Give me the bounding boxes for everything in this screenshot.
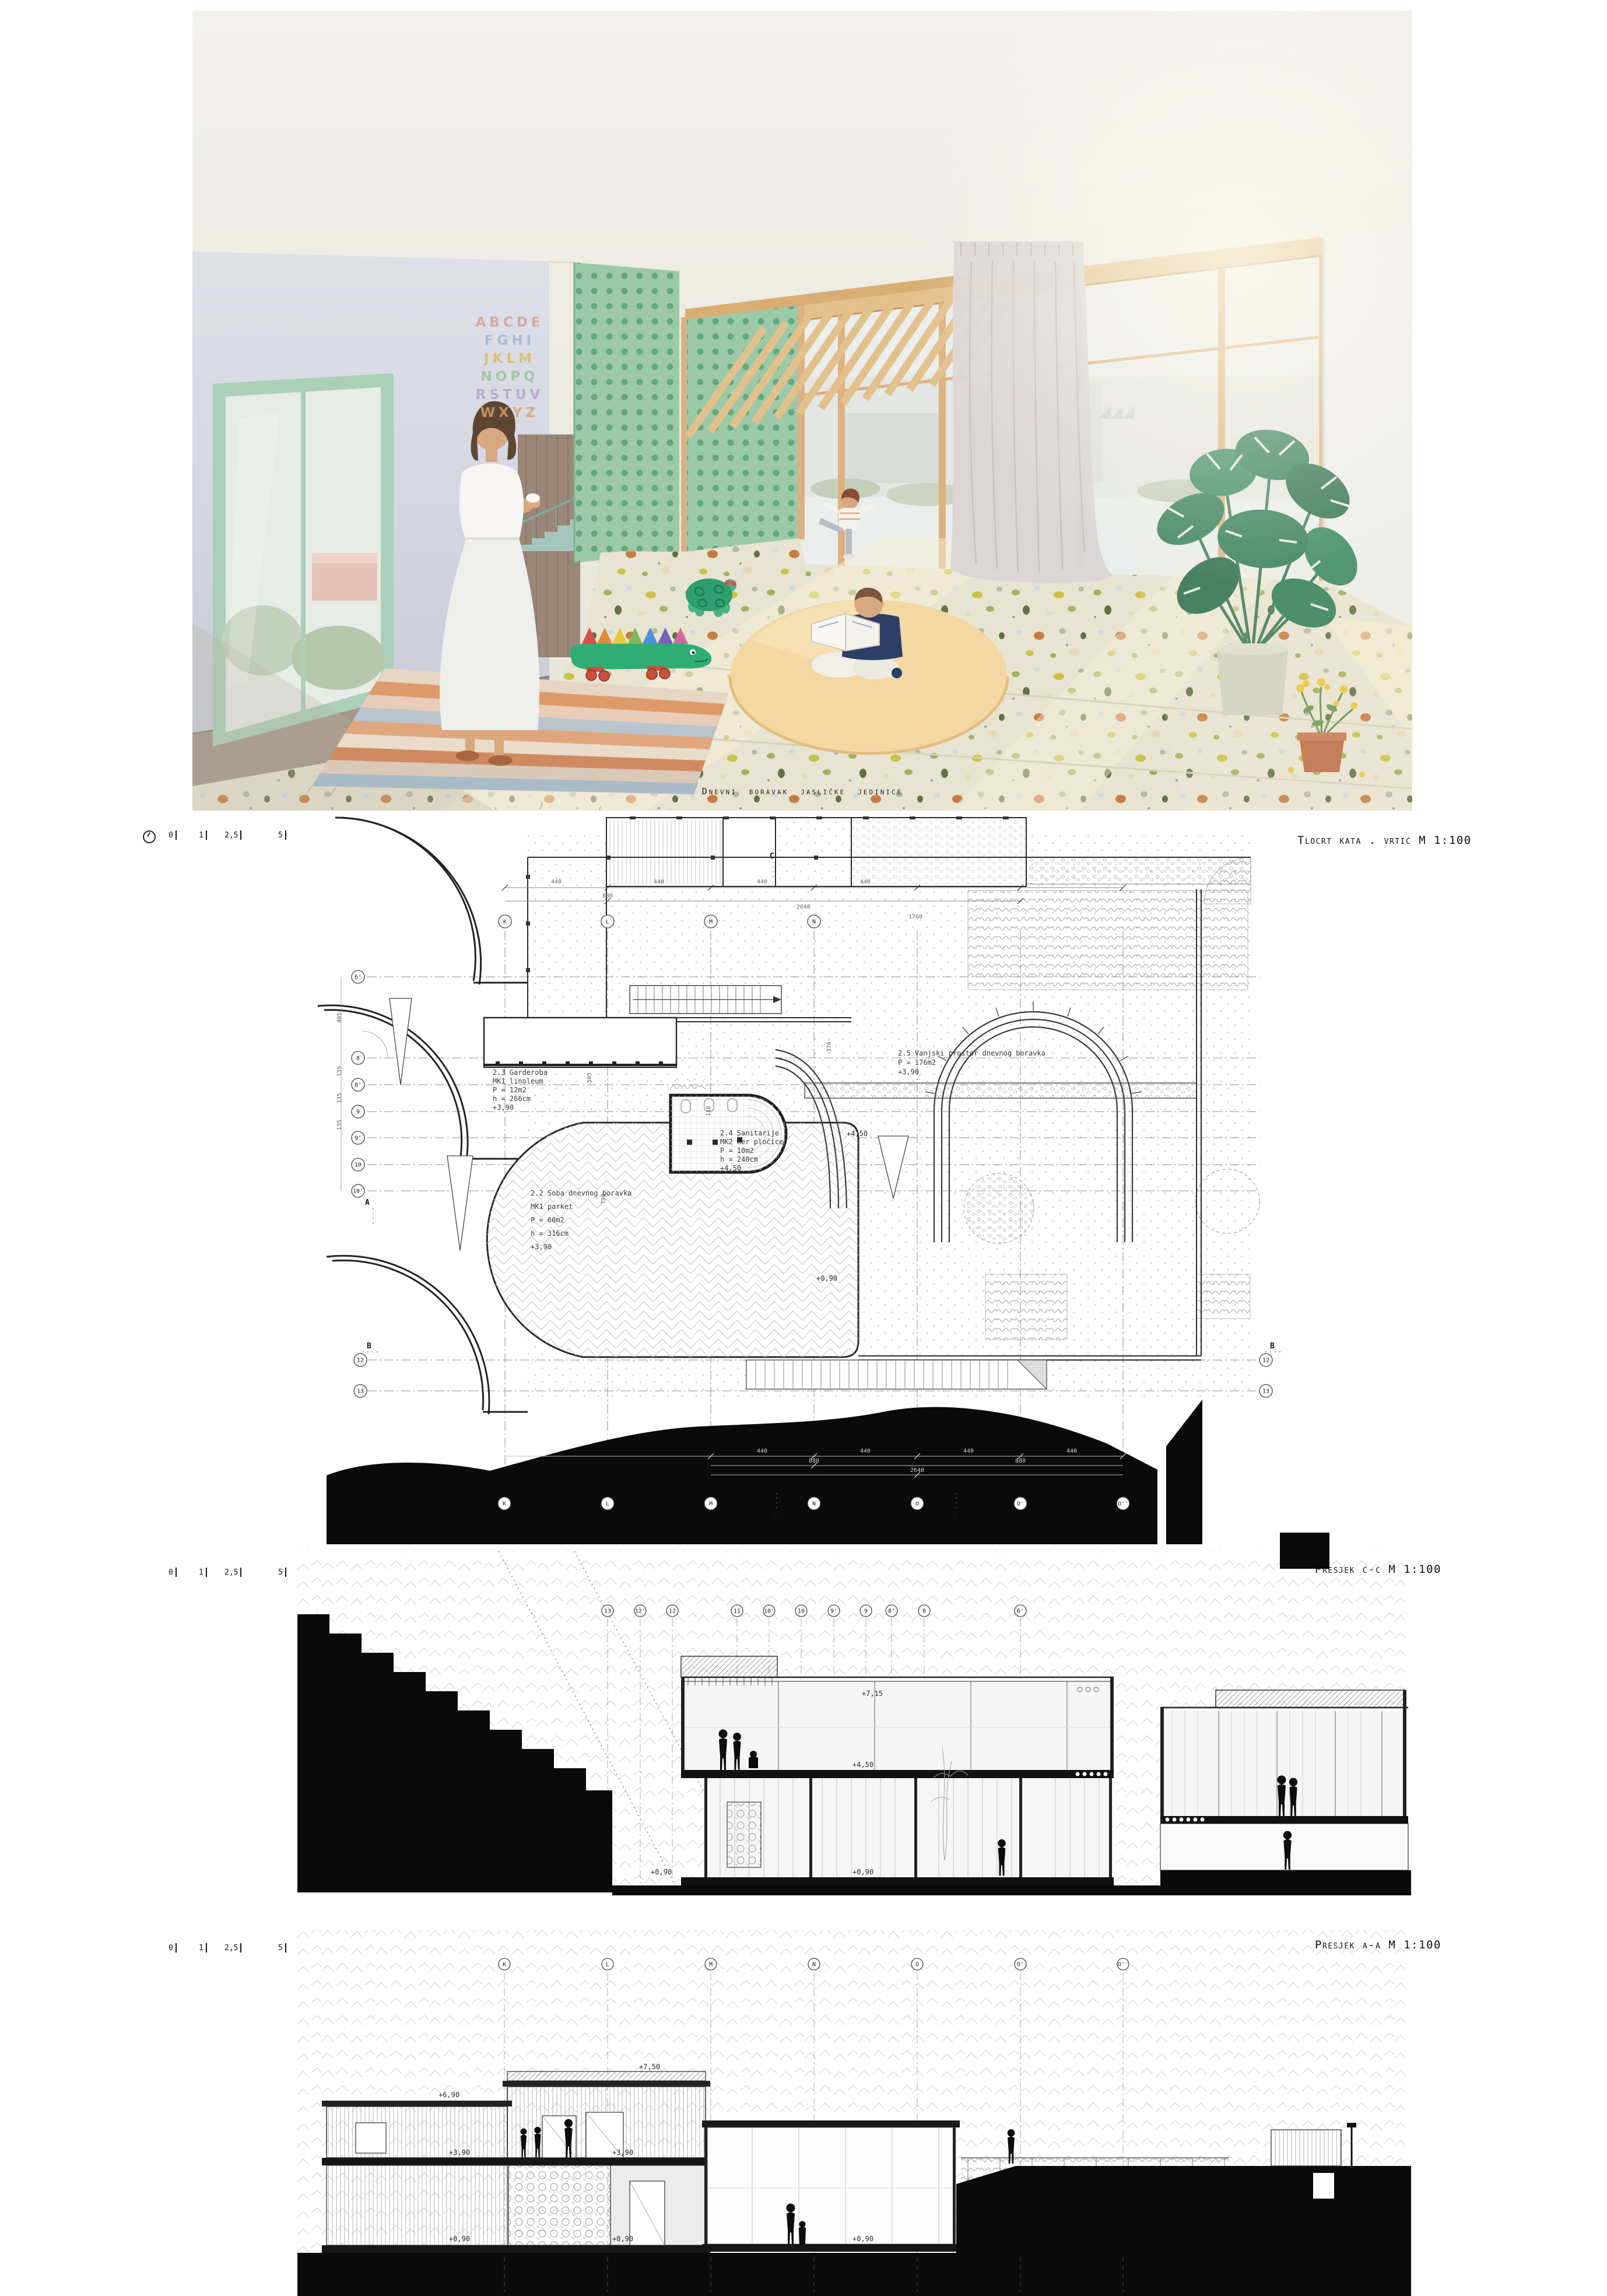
svg-text:+3,90: +3,90 <box>898 1068 919 1076</box>
floor-plan-drawing: 440 440 440 440 880 880 2640 440 440 440… <box>292 816 1283 1545</box>
svg-text:6': 6' <box>355 975 362 981</box>
svg-text:K: K <box>503 1962 506 1968</box>
svg-text:A: A <box>365 1198 370 1207</box>
svg-text:118: 118 <box>706 1106 712 1116</box>
svg-text:N: N <box>812 1501 816 1508</box>
alphabet-row: NOPQ <box>471 368 548 386</box>
svg-text:O: O <box>915 1501 919 1508</box>
svg-text:1760: 1760 <box>908 914 922 920</box>
aa-middle-building <box>702 2120 960 2252</box>
svg-text:M: M <box>709 1962 713 1968</box>
section-aa-scale-bar: 0 1 2,5 5 <box>143 1941 300 1957</box>
section-cc-scale-bar: 0 1 2,5 5 <box>143 1565 300 1582</box>
svg-text:440: 440 <box>757 879 767 885</box>
svg-text:9': 9' <box>830 1608 837 1615</box>
svg-text:10: 10 <box>798 1608 805 1615</box>
site-poche <box>327 1400 1202 1544</box>
plan-title: Tlocrt kata . vrtić M 1:100 <box>1297 834 1472 847</box>
svg-text:135: 135 <box>336 1066 343 1077</box>
scale-1: 1 <box>199 831 203 840</box>
alphabet-row: JKLM <box>471 350 548 368</box>
svg-text:M: M <box>709 919 713 926</box>
green-tile-wall-left <box>574 262 679 563</box>
svg-text:135: 135 <box>336 1120 343 1130</box>
svg-text:L: L <box>606 1962 609 1968</box>
svg-text:+0,90: +0,90 <box>449 2235 470 2243</box>
svg-text:+3,90: +3,90 <box>493 1103 514 1112</box>
svg-text:880: 880 <box>809 1458 819 1464</box>
svg-text:O'': O'' <box>1118 1962 1128 1968</box>
svg-text:K: K <box>503 919 507 926</box>
svg-text:9': 9' <box>355 1135 362 1142</box>
svg-text:MK2 ker pločice: MK2 ker pločice <box>720 1138 783 1146</box>
svg-text:405: 405 <box>336 1012 343 1023</box>
alphabet-row: WXYZ <box>471 404 548 422</box>
scale-2-5: 2,5 <box>224 1944 238 1953</box>
svg-text:505: 505 <box>587 1072 593 1083</box>
dim-strings-left: 405 135 135 135 <box>336 977 343 1191</box>
svg-text:12': 12' <box>635 1608 645 1615</box>
svg-text:MK1 parket: MK1 parket <box>531 1203 573 1211</box>
svg-text:O': O' <box>1017 1501 1024 1508</box>
scale-0: 0 <box>169 831 173 840</box>
svg-text:13: 13 <box>1262 1389 1269 1395</box>
svg-text:2.5 Vanjski prostor dnevnog bo: 2.5 Vanjski prostor dnevnog boravka <box>898 1049 1045 1057</box>
svg-text:135: 135 <box>336 1093 343 1103</box>
scale-1: 1 <box>199 1568 203 1577</box>
svg-text:h = 266cm: h = 266cm <box>493 1095 531 1103</box>
scale-5: 5 <box>278 1944 283 1953</box>
svg-text:12: 12 <box>1262 1358 1269 1364</box>
svg-text:MK1 linoleum: MK1 linoleum <box>493 1077 543 1085</box>
svg-text:10': 10' <box>353 1189 363 1195</box>
curved-pavilion-walls <box>318 818 528 1414</box>
svg-text:+3,90: +3,90 <box>612 2148 633 2157</box>
section-cc-drawing: +7,15 +4,50 +0,90 +0,90 13 12' 12 11 10'… <box>292 1528 1411 1895</box>
svg-text:+0,90: +0,90 <box>612 2235 633 2243</box>
svg-text:O': O' <box>1017 1962 1024 1968</box>
svg-text:+7,50: +7,50 <box>639 2063 660 2071</box>
svg-text:N: N <box>812 919 816 926</box>
svg-text:B: B <box>367 1342 371 1351</box>
svg-text:13: 13 <box>604 1608 611 1615</box>
svg-text:2640: 2640 <box>797 904 810 910</box>
svg-text:+4,50: +4,50 <box>720 1164 741 1172</box>
svg-text:880: 880 <box>602 893 613 899</box>
alphabet-row: FGHI <box>471 332 548 350</box>
svg-text:+3,90: +3,90 <box>449 2148 470 2157</box>
svg-text:+6,90: +6,90 <box>438 2091 459 2099</box>
svg-text:D: D <box>953 1513 957 1522</box>
level-label: +0,90 <box>816 1274 837 1282</box>
outdoor-stair <box>746 1360 1047 1389</box>
svg-text:C: C <box>773 1513 778 1522</box>
svg-text:440: 440 <box>963 1448 974 1454</box>
alphabet-wall-letters: ABCDE FGHI JKLM NOPQ RSTUV WXYZ <box>471 314 548 422</box>
svg-text:12: 12 <box>669 1608 676 1615</box>
svg-text:L: L <box>606 1501 609 1508</box>
scale-5: 5 <box>278 1568 283 1577</box>
svg-text:440: 440 <box>860 879 871 885</box>
svg-text:2.3 Garderoba: 2.3 Garderoba <box>493 1068 548 1077</box>
svg-text:440: 440 <box>551 879 562 885</box>
svg-text:9: 9 <box>356 1109 360 1116</box>
svg-text:L: L <box>606 919 609 926</box>
svg-text:N: N <box>812 1962 816 1968</box>
svg-text:P = 10m2: P = 10m2 <box>720 1147 754 1155</box>
svg-text:+4,50: +4,50 <box>852 1761 873 1769</box>
section-aa-drawing: +7,50 +6,90 +3,90 +3,90 +0,90 +0,90 +0,9… <box>292 1919 1411 2296</box>
svg-text:6': 6' <box>1017 1608 1024 1615</box>
cc-right-building <box>1160 1690 1408 1870</box>
svg-text:9: 9 <box>864 1608 868 1615</box>
svg-text:+0,90: +0,90 <box>651 1868 672 1876</box>
svg-text:+0,90: +0,90 <box>852 1868 873 1876</box>
svg-text:2.4 Sanitarije: 2.4 Sanitarije <box>720 1129 779 1137</box>
svg-text:440: 440 <box>654 879 664 885</box>
scale-0: 0 <box>169 1568 173 1577</box>
svg-text:h = 316cm: h = 316cm <box>531 1229 569 1238</box>
svg-text:440: 440 <box>1066 1448 1077 1454</box>
render-caption: Dnevni boravak jasličke jedinice <box>702 786 903 797</box>
svg-text:8': 8' <box>888 1608 895 1615</box>
render-illustration: ABCDE FGHI JKLM NOPQ RSTUV WXYZ Dnevni b… <box>192 10 1412 811</box>
svg-text:h = 240cm: h = 240cm <box>720 1155 758 1163</box>
presentation-board: ABCDE FGHI JKLM NOPQ RSTUV WXYZ Dnevni b… <box>0 0 1607 2296</box>
alphabet-row: RSTUV <box>471 386 548 404</box>
svg-text:376: 376 <box>826 1042 833 1052</box>
svg-text:B: B <box>1270 1342 1275 1351</box>
plan-scale-bar: 0 1 2,5 5 <box>143 828 300 844</box>
svg-text:O: O <box>915 1962 919 1968</box>
svg-text:440: 440 <box>860 1448 871 1454</box>
svg-text:13: 13 <box>357 1389 364 1395</box>
svg-text:+0,90: +0,90 <box>852 2235 873 2243</box>
svg-text:+3,90: +3,90 <box>531 1243 552 1251</box>
svg-text:K: K <box>503 1501 506 1508</box>
svg-text:2640: 2640 <box>910 1467 924 1474</box>
scale-5: 5 <box>278 831 283 840</box>
svg-text:C: C <box>770 852 774 861</box>
scale-1: 1 <box>199 1944 203 1953</box>
upper-stair <box>630 986 781 1014</box>
render-canvas <box>192 10 1412 811</box>
svg-text:O'': O'' <box>1118 1501 1128 1508</box>
svg-text:880: 880 <box>1015 1458 1026 1464</box>
north-icon <box>143 830 156 843</box>
svg-text:M: M <box>709 1501 713 1508</box>
svg-text:440: 440 <box>757 1448 767 1454</box>
svg-text:8: 8 <box>356 1056 360 1062</box>
svg-text:8': 8' <box>355 1082 362 1089</box>
cc-left-building <box>681 1656 1114 1885</box>
svg-text:P = 60m2: P = 60m2 <box>531 1216 564 1224</box>
svg-text:11: 11 <box>734 1608 741 1615</box>
svg-text:8: 8 <box>922 1608 926 1615</box>
svg-text:P = 12m2: P = 12m2 <box>493 1086 527 1094</box>
scale-2-5: 2,5 <box>224 1568 238 1577</box>
alphabet-row: ABCDE <box>471 314 548 332</box>
svg-text:2.2 Soba dnevnog boravka: 2.2 Soba dnevnog boravka <box>531 1189 631 1197</box>
scale-2-5: 2,5 <box>224 831 238 840</box>
garderoba-room <box>484 1018 676 1067</box>
svg-text:+7,15: +7,15 <box>862 1689 883 1698</box>
svg-text:12: 12 <box>357 1358 364 1364</box>
scale-0: 0 <box>169 1944 173 1953</box>
level-label: +4,50 <box>847 1130 868 1138</box>
svg-text:10: 10 <box>355 1162 362 1169</box>
svg-text:P = 176m2: P = 176m2 <box>898 1058 936 1067</box>
svg-text:10': 10' <box>764 1608 774 1615</box>
